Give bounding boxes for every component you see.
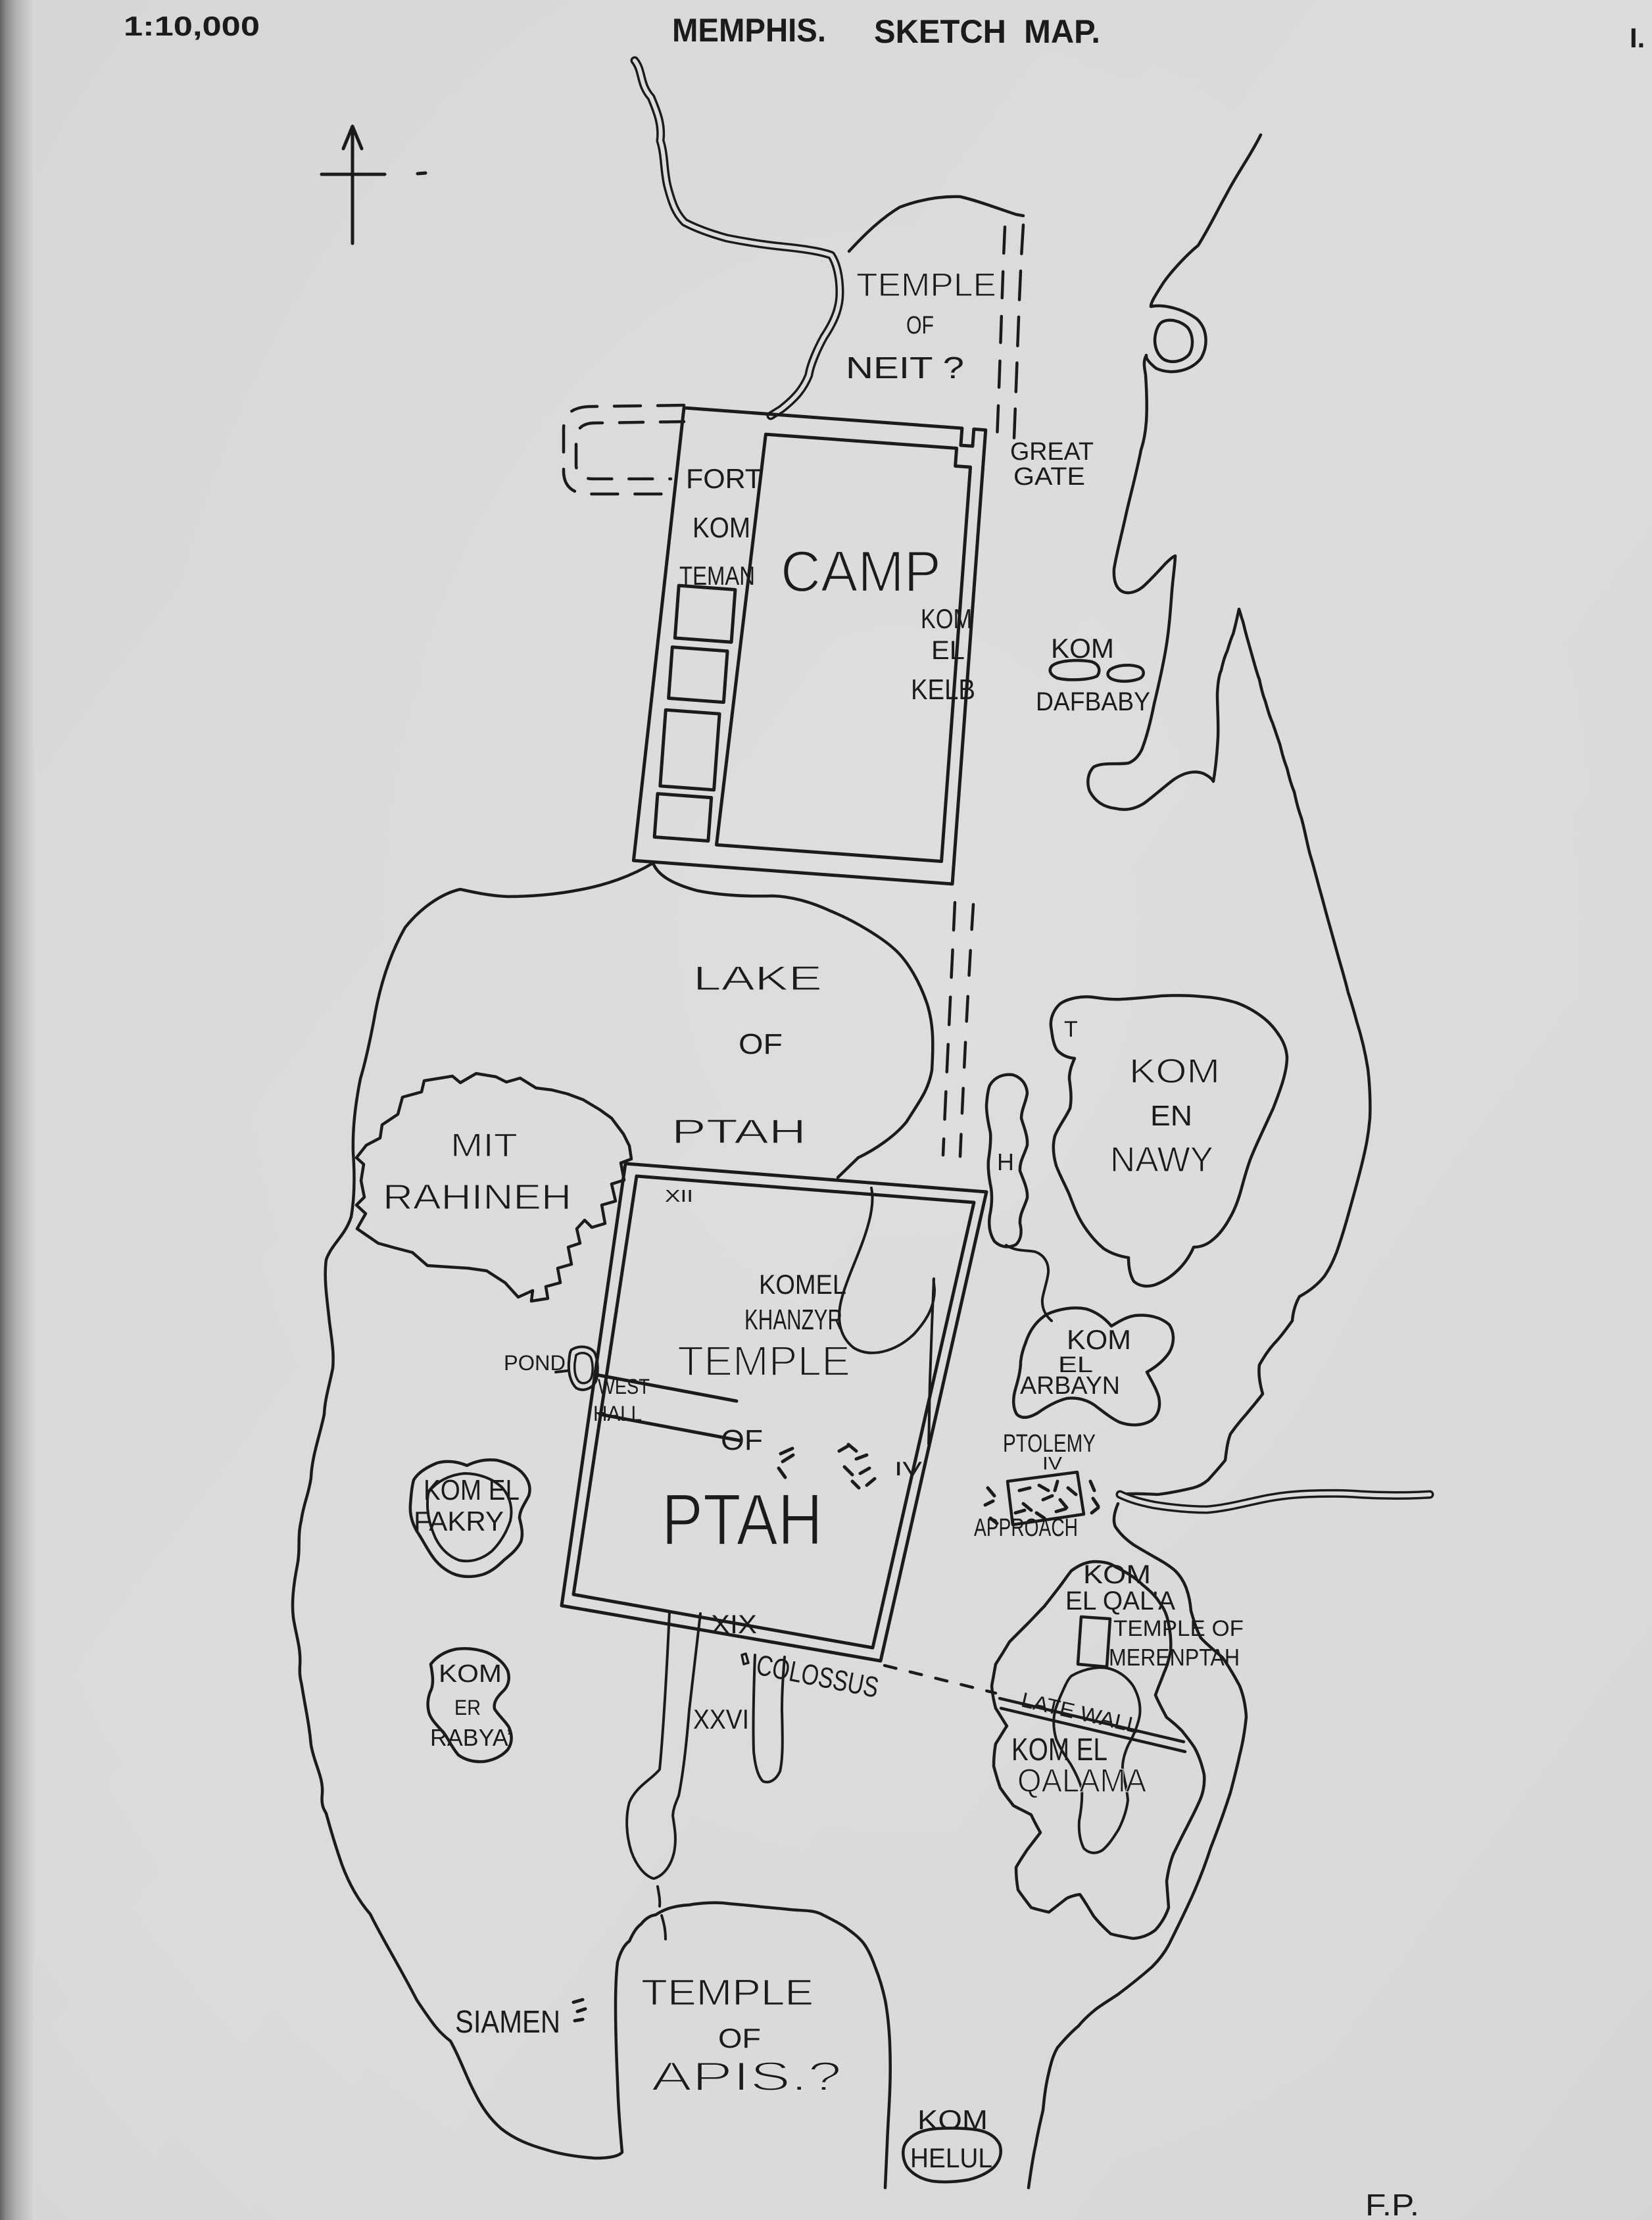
svg-text:KOM: KOM xyxy=(439,1660,502,1688)
svg-text:MEMPHIS.: MEMPHIS. xyxy=(672,12,826,49)
svg-text:RABYA’: RABYA’ xyxy=(430,1724,512,1751)
svg-text:KOM: KOM xyxy=(1083,1560,1151,1589)
svg-text:XII: XII xyxy=(665,1186,693,1206)
svg-text:KOMEL: KOMEL xyxy=(759,1269,846,1300)
svg-text:KOM: KOM xyxy=(1051,633,1114,664)
svg-text:OF: OF xyxy=(718,2023,761,2054)
svg-text:EN: EN xyxy=(1150,1100,1192,1132)
svg-text:XIX: XIX xyxy=(711,1610,757,1639)
svg-text:OF: OF xyxy=(721,1424,763,1456)
svg-text:HALL: HALL xyxy=(593,1402,642,1425)
svg-text:KOM: KOM xyxy=(1129,1052,1220,1091)
svg-text:TEMAN: TEMAN xyxy=(679,562,755,591)
svg-text:KOM EL: KOM EL xyxy=(424,1474,520,1506)
svg-text:TEMPLE: TEMPLE xyxy=(677,1337,850,1385)
svg-text:PTAH: PTAH xyxy=(671,1113,806,1151)
svg-text:KOM: KOM xyxy=(1067,1324,1131,1355)
svg-text:TEMPLE: TEMPLE xyxy=(641,1971,814,2013)
svg-text:RAHINEH: RAHINEH xyxy=(383,1177,571,1217)
svg-text:TEMPLE OF: TEMPLE OF xyxy=(1113,1616,1244,1641)
svg-text:MIT: MIT xyxy=(450,1127,518,1164)
svg-text:DAFBABY: DAFBABY xyxy=(1036,687,1150,716)
svg-text:EL: EL xyxy=(931,636,965,665)
svg-text:IV: IV xyxy=(894,1458,922,1480)
svg-text:ER: ER xyxy=(454,1696,481,1719)
svg-text:OF: OF xyxy=(906,312,934,339)
svg-text:PTAH: PTAH xyxy=(662,1479,823,1560)
svg-text:EL QAL’A: EL QAL’A xyxy=(1065,1587,1175,1616)
svg-text:F.P.: F.P. xyxy=(1365,2188,1419,2220)
svg-text:FORT: FORT xyxy=(686,463,762,494)
svg-text:WEST: WEST xyxy=(598,1375,650,1398)
svg-text:HELUL: HELUL xyxy=(910,2142,992,2173)
svg-text:NAWY: NAWY xyxy=(1110,1140,1213,1179)
svg-text:T: T xyxy=(1064,1017,1078,1042)
svg-text:TEMPLE: TEMPLE xyxy=(856,266,996,303)
svg-text:XXVI: XXVI xyxy=(693,1704,749,1735)
svg-text:CAMP: CAMP xyxy=(781,539,941,604)
svg-text:KELB: KELB xyxy=(911,674,975,706)
svg-text:I.: I. xyxy=(1630,22,1645,53)
svg-text:KOM: KOM xyxy=(692,512,750,544)
svg-text:APPROACH: APPROACH xyxy=(974,1514,1078,1542)
svg-text:GATE: GATE xyxy=(1013,463,1085,491)
svg-text:GREAT: GREAT xyxy=(1010,438,1094,466)
svg-text:KHANZYR: KHANZYR xyxy=(744,1304,842,1336)
svg-text:SIAMEN: SIAMEN xyxy=(455,2005,560,2040)
svg-text:MERENPTAH: MERENPTAH xyxy=(1109,1644,1240,1671)
svg-text:LAKE: LAKE xyxy=(693,960,822,998)
svg-text:SKETCH MAP.: SKETCH MAP. xyxy=(874,13,1100,50)
svg-text:APIS.?: APIS.? xyxy=(651,2054,842,2100)
svg-text:KOM: KOM xyxy=(917,2104,988,2135)
svg-text:1:10,000: 1:10,000 xyxy=(124,11,260,41)
svg-text:FAKRY: FAKRY xyxy=(414,1506,504,1537)
svg-text:H: H xyxy=(997,1148,1014,1175)
svg-text:QALAMA: QALAMA xyxy=(1017,1762,1147,1799)
svg-text:NEIT ?: NEIT ? xyxy=(846,351,964,385)
svg-text:POND: POND xyxy=(504,1351,566,1375)
svg-text:ARBAYN: ARBAYN xyxy=(1020,1372,1120,1400)
svg-text:OF: OF xyxy=(739,1028,783,1060)
svg-text:KOM: KOM xyxy=(921,603,972,634)
svg-text:IV: IV xyxy=(1042,1453,1062,1473)
